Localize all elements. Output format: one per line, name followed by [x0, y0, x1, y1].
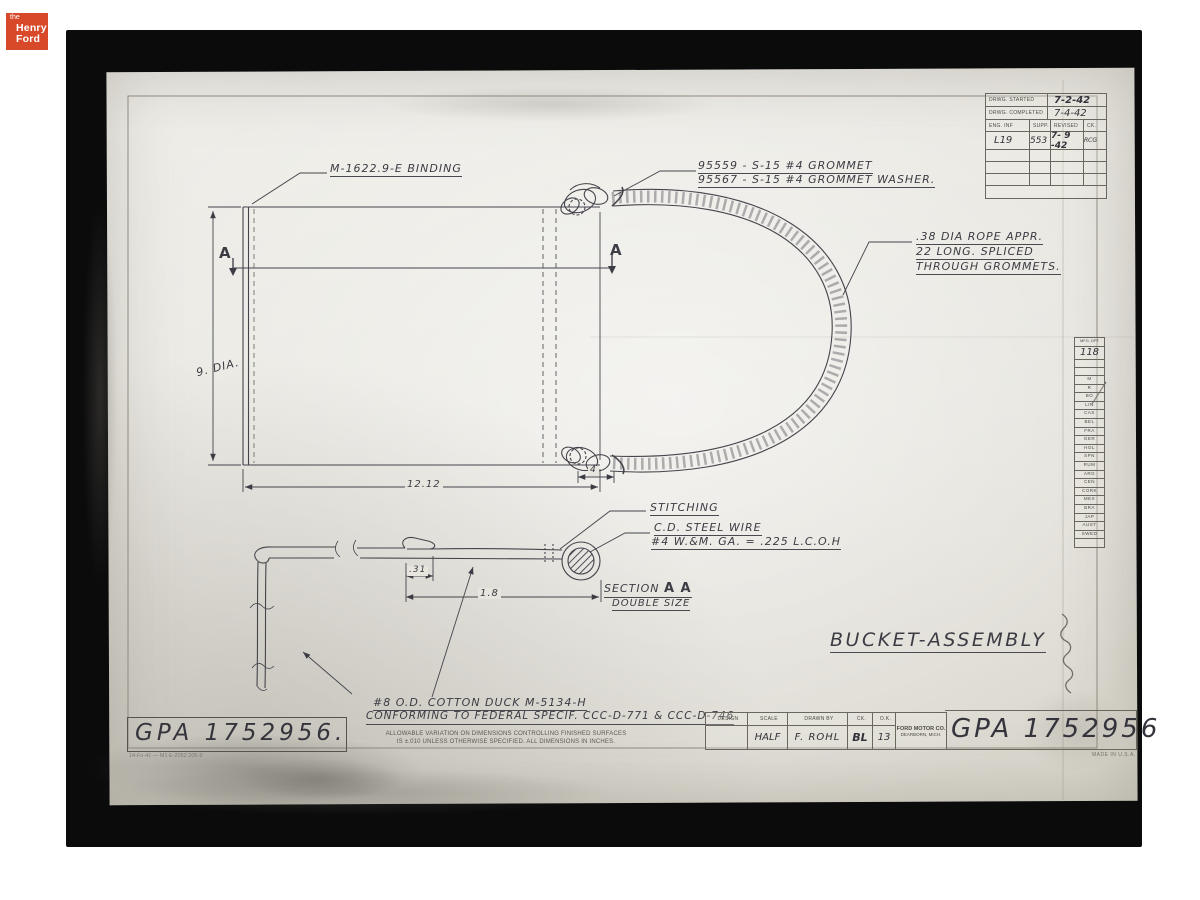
annotation-rope-1: .38 DIA ROPE APPR. — [916, 231, 1043, 245]
mfg-dpt-value: 118 — [1080, 347, 1099, 359]
drwg-started-label: DRWG. STARTED — [986, 97, 1034, 103]
scanned-photo: the Henry Ford — [0, 0, 1200, 900]
gpa-number-right: GPA 1752956 — [951, 714, 1160, 744]
annotation-grommet-washer: 95567 - S-15 #4 GROMMET WASHER. — [698, 174, 935, 188]
table-row — [986, 162, 1106, 174]
table-row — [1075, 539, 1104, 547]
section-marker-a-right: A — [610, 242, 622, 259]
table-row: ENG. INF SUPP. REVISED CK. — [986, 120, 1106, 132]
section-aa: A A — [664, 581, 692, 596]
section-marker-a-left: A — [219, 245, 231, 262]
table-row: DRWG. COMPLETED 7-4-42 — [986, 107, 1106, 120]
mfg-code-row: FRA — [1075, 428, 1104, 437]
mfg-code-row: CORK — [1075, 488, 1104, 497]
annotation-binding: M-1622.9-E BINDING — [330, 163, 462, 177]
table-row: L19 553 7- 9 -42 RCG — [986, 132, 1106, 150]
tolerance-note-line2: IS ±.010 UNLESS OTHERWISE SPECIFIED. ALL… — [377, 739, 635, 745]
gpa-number-left: GPA 1752956. — [135, 720, 346, 746]
annotation-duck-1: #8 O.D. COTTON DUCK M-5134-H — [373, 697, 587, 711]
table-row — [986, 150, 1106, 162]
mfg-dept-table: MFG. DPT 118 M R BO LIN CAS BEL FRA GER … — [1074, 337, 1105, 548]
mfg-code-row: M — [1075, 376, 1104, 385]
mfg-code-row: HOL — [1075, 445, 1104, 454]
mfg-code-row: RUM — [1075, 462, 1104, 471]
revised-value: 7- 9 -42 — [1051, 131, 1083, 151]
revision-table: DRWG. STARTED 7-2-42 DRWG. COMPLETED 7-4… — [985, 93, 1107, 199]
mfg-code-row: CEN — [1075, 479, 1104, 488]
mfg-code-row: AUST — [1075, 522, 1104, 531]
gpa-stamp-box-left: GPA 1752956. — [127, 717, 347, 752]
drwg-completed-label: DRWG. COMPLETED — [986, 110, 1043, 116]
mfg-code-row: LIN — [1075, 402, 1104, 411]
mfg-code-row: JAP — [1075, 514, 1104, 523]
mfg-code-row: BRA — [1075, 505, 1104, 514]
drawing-title: BUCKET-ASSEMBLY — [830, 630, 1046, 653]
ck-value: RCG — [1084, 137, 1097, 144]
mfg-code-row: BEL — [1075, 419, 1104, 428]
dim-hem: 4 — [588, 466, 599, 476]
drwg-started-value: 7-2-42 — [1048, 95, 1090, 106]
drwg-completed-value: 7-4-42 — [1048, 108, 1087, 119]
gpa-stamp-box-right: GPA 1752956 — [945, 710, 1137, 750]
ck-header: CK. — [1084, 123, 1096, 129]
mfg-dpt-header: MFG. DPT — [1080, 338, 1099, 346]
ok-header: O.K. — [877, 716, 891, 722]
annotation-duck-2: CONFORMING TO FEDERAL SPECIF. CCC-D-771 … — [366, 711, 734, 725]
design-value — [706, 726, 747, 749]
supp-value: 553 — [1030, 136, 1047, 146]
annotation-rope-2: 22 LONG. SPLICED — [916, 246, 1034, 260]
mfg-code-row: SPN — [1075, 453, 1104, 462]
ck-header: CK. — [854, 716, 866, 722]
mfg-code-row: CAS — [1075, 410, 1104, 419]
annotation-stitching: STITCHING — [650, 502, 719, 516]
mfg-code-row: BO — [1075, 393, 1104, 402]
tolerance-note-line1: ALLOWABLE VARIATION ON DIMENSIONS CONTRO… — [377, 731, 635, 737]
mfg-code-row: MEX — [1075, 496, 1104, 505]
ck-value: BL — [852, 731, 867, 744]
table-row: 118 — [1075, 347, 1104, 360]
table-row: DRWG. STARTED 7-2-42 — [986, 94, 1106, 107]
table-row — [986, 174, 1106, 186]
mfg-code-row: ARG — [1075, 471, 1104, 480]
annotation-steel-wire: C.D. STEEL WIRE — [654, 522, 762, 536]
dim-fold: .31 — [407, 566, 428, 576]
design-header: DESIGN — [715, 716, 739, 722]
company-city: DEARBORN, MICH. — [901, 732, 942, 737]
scale-header: SCALE — [757, 716, 778, 722]
form-number: 14-Fo-41 — M1 E-2052 205-9 — [129, 753, 202, 759]
annotation-rope-3: THROUGH GROMMETS. — [916, 261, 1061, 275]
mfg-code-row: SWED — [1075, 531, 1104, 540]
ok-value: 13 — [878, 732, 891, 743]
dim-width: 12.12 — [405, 479, 443, 490]
scale-value: HALF — [755, 732, 781, 743]
annotation-grommet: 95559 - S-15 #4 GROMMET — [698, 160, 873, 174]
eng-inf-header: ENG. INF — [986, 123, 1013, 129]
annotation-wire-gauge: #4 W.&M. GA. = .225 L.C.O.H — [651, 536, 841, 550]
revised-header: REVISED — [1051, 123, 1078, 129]
double-size-label: DOUBLE SIZE — [612, 598, 690, 611]
title-block: DESIGN SCALE HALF DRAWN BY F. ROHL CK. B… — [705, 712, 947, 750]
table-row: MFG. DPT — [1075, 338, 1104, 347]
section-word: SECTION — [604, 582, 659, 595]
eng-inf-value: L19 — [986, 135, 1012, 146]
mfg-code-row: R — [1075, 385, 1104, 394]
drawn-by-value: F. ROHL — [795, 732, 841, 743]
drawn-by-header: DRAWN BY — [801, 716, 833, 722]
section-label: SECTION A A — [604, 582, 692, 598]
supp-header: SUPP. — [1030, 123, 1049, 129]
table-row — [1075, 368, 1104, 376]
mfg-code-row: GER — [1075, 436, 1104, 445]
dim-section-length: 1.8 — [478, 588, 501, 599]
table-row — [1075, 360, 1104, 368]
made-in-usa: MADE IN U.S.A. — [1092, 752, 1136, 758]
